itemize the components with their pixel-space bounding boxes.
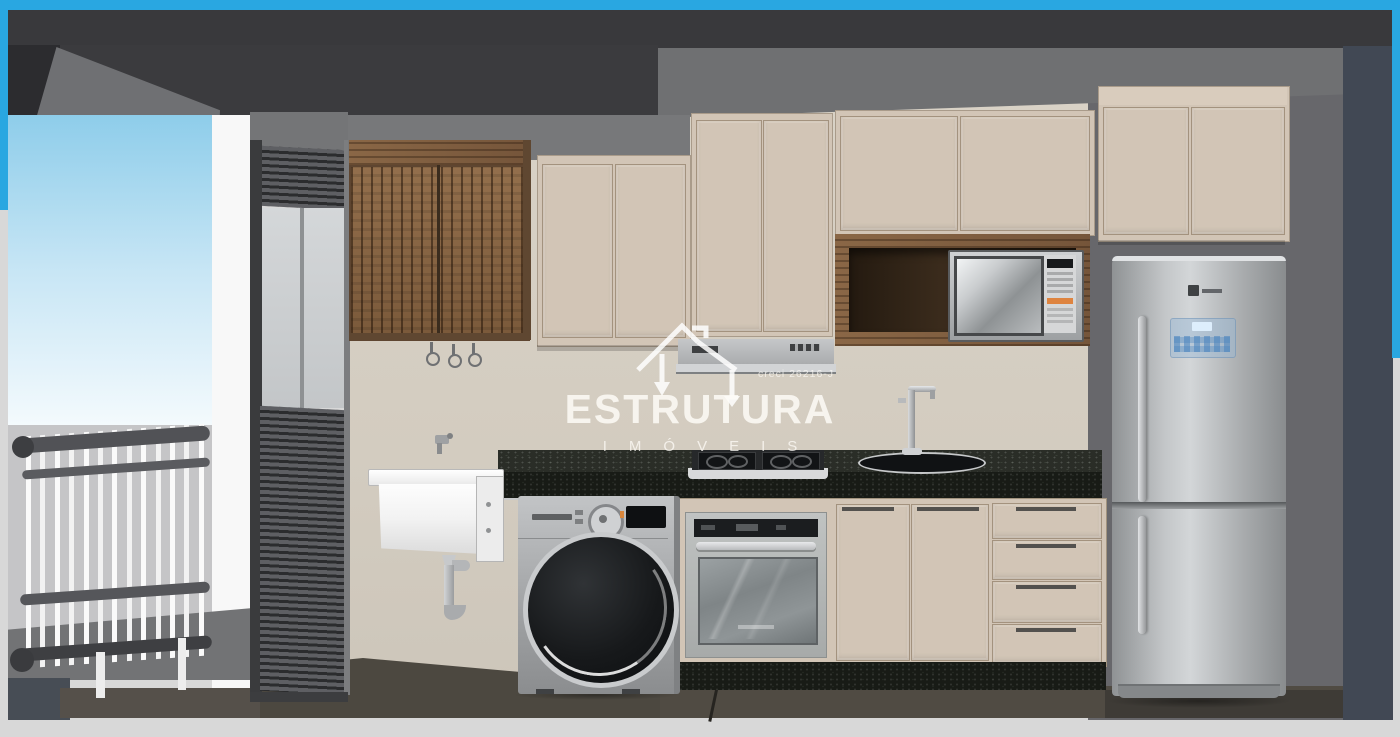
window-sill	[250, 692, 348, 702]
built-in-oven	[685, 512, 827, 658]
washer-foot	[622, 689, 640, 694]
fridge-handle-upper	[1138, 316, 1146, 502]
shutter-bottom	[260, 406, 346, 696]
range-hood	[676, 336, 836, 374]
cabinet-door	[696, 120, 762, 332]
cabinet-top-band	[1099, 87, 1287, 105]
hook-ring	[426, 352, 440, 366]
kitchen-sink	[858, 452, 986, 474]
frame-top-edge	[0, 0, 1400, 10]
cabinet-door	[840, 116, 958, 231]
cabinet-door	[960, 116, 1090, 231]
window-lintel	[250, 112, 348, 150]
window-glass-divider	[300, 208, 304, 408]
fridge-panel-buttons	[1174, 336, 1230, 352]
burner-ring	[706, 455, 728, 469]
cabinet-door	[763, 120, 829, 332]
cabinet-door	[1191, 107, 1285, 235]
faucet-base	[902, 448, 922, 455]
door-handle	[917, 507, 979, 511]
burner-ring	[728, 455, 748, 468]
cabinet-shadow	[537, 345, 689, 351]
cabinet-shadow	[1098, 240, 1285, 245]
cooktop	[688, 448, 828, 482]
washer-accent	[620, 511, 624, 518]
burner-ring	[792, 455, 812, 468]
drawer-handle	[1016, 628, 1076, 632]
hook-ring	[448, 354, 462, 368]
washer-dial-center	[599, 515, 607, 523]
microwave-door	[954, 256, 1044, 336]
drain-pipe	[444, 565, 454, 609]
oven-display	[736, 524, 758, 531]
frame-left-edge	[0, 8, 8, 210]
laundry-tub-side-panel	[476, 476, 504, 562]
wood-cabinet-door-divider	[437, 165, 440, 337]
microwave-buttons-lower	[1047, 308, 1073, 324]
washer-display	[626, 506, 666, 528]
washer-foot	[536, 689, 554, 694]
fridge-door-divider	[1112, 502, 1286, 509]
wood-cabinet-top-band	[349, 140, 529, 165]
railing-post	[178, 638, 186, 690]
washer-button	[575, 519, 583, 524]
hood-vent-left	[692, 346, 718, 353]
overhead-fridge-cabinet	[1098, 86, 1290, 242]
toe-kick	[678, 662, 1106, 690]
sky	[8, 115, 213, 465]
tub-screw	[486, 528, 491, 533]
hood-lip	[676, 364, 836, 374]
railing-post	[96, 652, 105, 698]
microwave-accent	[1047, 298, 1073, 304]
tub-screw	[486, 502, 491, 507]
oven-display	[776, 525, 786, 530]
wood-cabinet-bottom-edge	[349, 333, 529, 340]
shutter-top	[262, 146, 344, 210]
door-handle	[842, 507, 894, 511]
tap-outlet	[437, 443, 442, 454]
oven-handle	[696, 542, 816, 550]
cabinet-door	[1103, 107, 1189, 235]
upper-cabinet-over-niche	[835, 110, 1095, 236]
fridge-panel-display	[1192, 322, 1212, 331]
railing-top-cap	[12, 436, 34, 458]
hook-ring	[468, 353, 482, 367]
cabinet-door	[542, 164, 613, 338]
faucet-stem	[908, 390, 915, 452]
burner-ring	[770, 455, 792, 469]
washer-brand-mark	[532, 514, 572, 520]
washer-button	[575, 510, 583, 515]
wood-cabinet-side	[523, 140, 531, 340]
far-right-wall	[1343, 46, 1393, 720]
wall-hook	[466, 343, 480, 367]
tap-handle	[447, 433, 453, 439]
base-door	[836, 504, 910, 661]
base-door	[911, 504, 989, 661]
wall-hook	[424, 342, 438, 366]
refrigerator	[1112, 256, 1286, 696]
fridge-base-grille	[1118, 684, 1280, 698]
microwave-display	[1047, 259, 1073, 268]
cabinet-door	[615, 164, 686, 338]
fridge-brand-logo	[1188, 285, 1199, 296]
upper-cabinet-tall	[691, 113, 833, 337]
hood-vent-right	[790, 344, 820, 351]
frame-right-edge	[1392, 8, 1400, 358]
fridge-handle-lower	[1138, 516, 1146, 634]
render-canvas: creci 26216-J ESTRUTURA IMÓVEIS	[0, 0, 1400, 737]
fridge-top-edge	[1112, 256, 1286, 261]
ceiling-beam-band	[8, 10, 1393, 48]
wall-hook	[446, 344, 460, 368]
faucet-tip	[930, 390, 935, 399]
balcony-floor-front	[60, 688, 260, 718]
tub-wall-tap	[435, 433, 457, 461]
microwave	[948, 250, 1084, 342]
drawer-handle	[1016, 507, 1076, 511]
oven-display	[701, 525, 715, 530]
drain-elbow	[452, 560, 470, 571]
drawer-handle	[1016, 544, 1076, 548]
washing-machine	[518, 496, 680, 694]
oven-brand-mark	[738, 625, 774, 629]
upper-cabinet-laundry	[537, 155, 691, 347]
drawer-handle	[1016, 585, 1076, 589]
faucet-handle	[898, 398, 906, 403]
fridge-brand-wordmark	[1202, 289, 1222, 293]
microwave-buttons	[1047, 272, 1073, 294]
railing-bottom-cap	[10, 648, 34, 672]
